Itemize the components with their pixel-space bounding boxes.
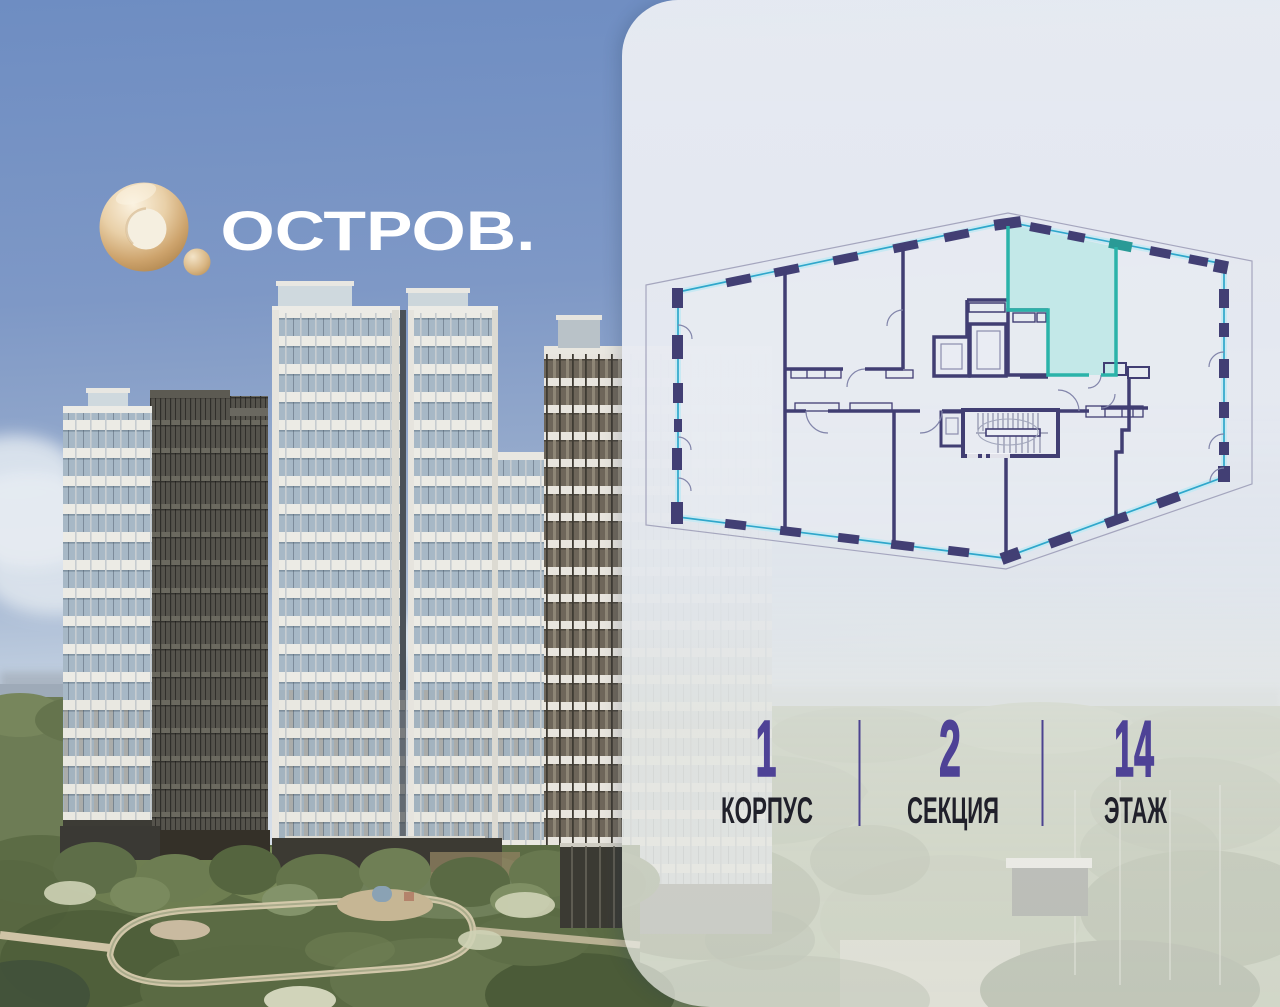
svg-text:СЕКЦИЯ: СЕКЦИЯ <box>907 790 999 831</box>
svg-text:1: 1 <box>756 704 777 793</box>
svg-text:2: 2 <box>939 704 961 793</box>
svg-text:14: 14 <box>1114 704 1154 793</box>
svg-text:КОРПУС: КОРПУС <box>721 790 813 831</box>
svg-text:ЭТАЖ: ЭТАЖ <box>1104 790 1167 831</box>
svg-text:ОСТРОВ.: ОСТРОВ. <box>221 199 536 262</box>
